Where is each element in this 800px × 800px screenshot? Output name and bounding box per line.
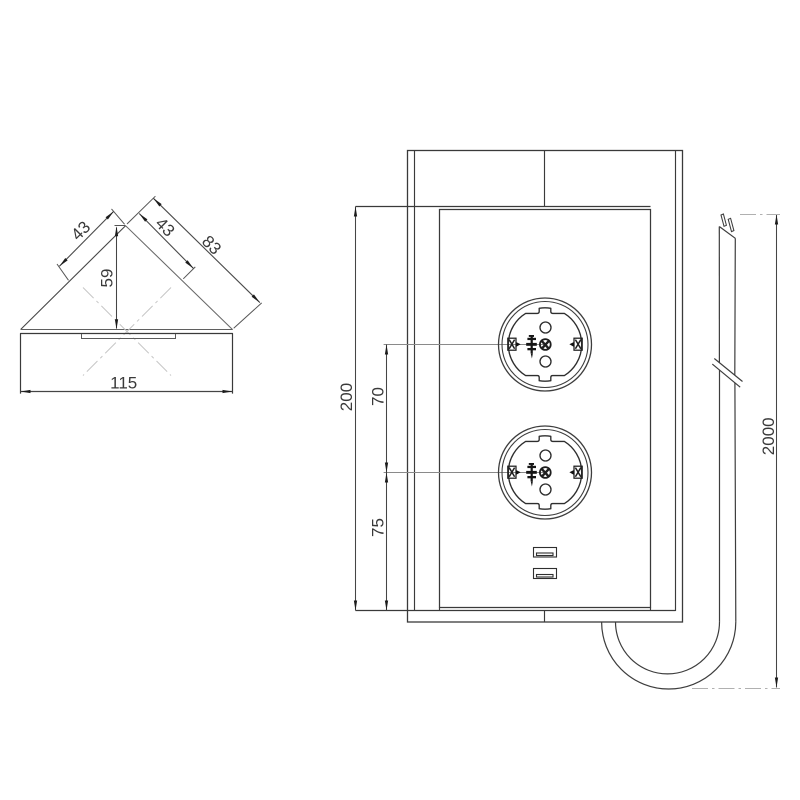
svg-text:70: 70 <box>369 387 388 406</box>
svg-text:200: 200 <box>337 383 356 411</box>
svg-text:2000: 2000 <box>759 417 778 455</box>
svg-text:59: 59 <box>97 269 116 288</box>
svg-text:115: 115 <box>110 374 137 393</box>
svg-text:75: 75 <box>369 518 388 537</box>
